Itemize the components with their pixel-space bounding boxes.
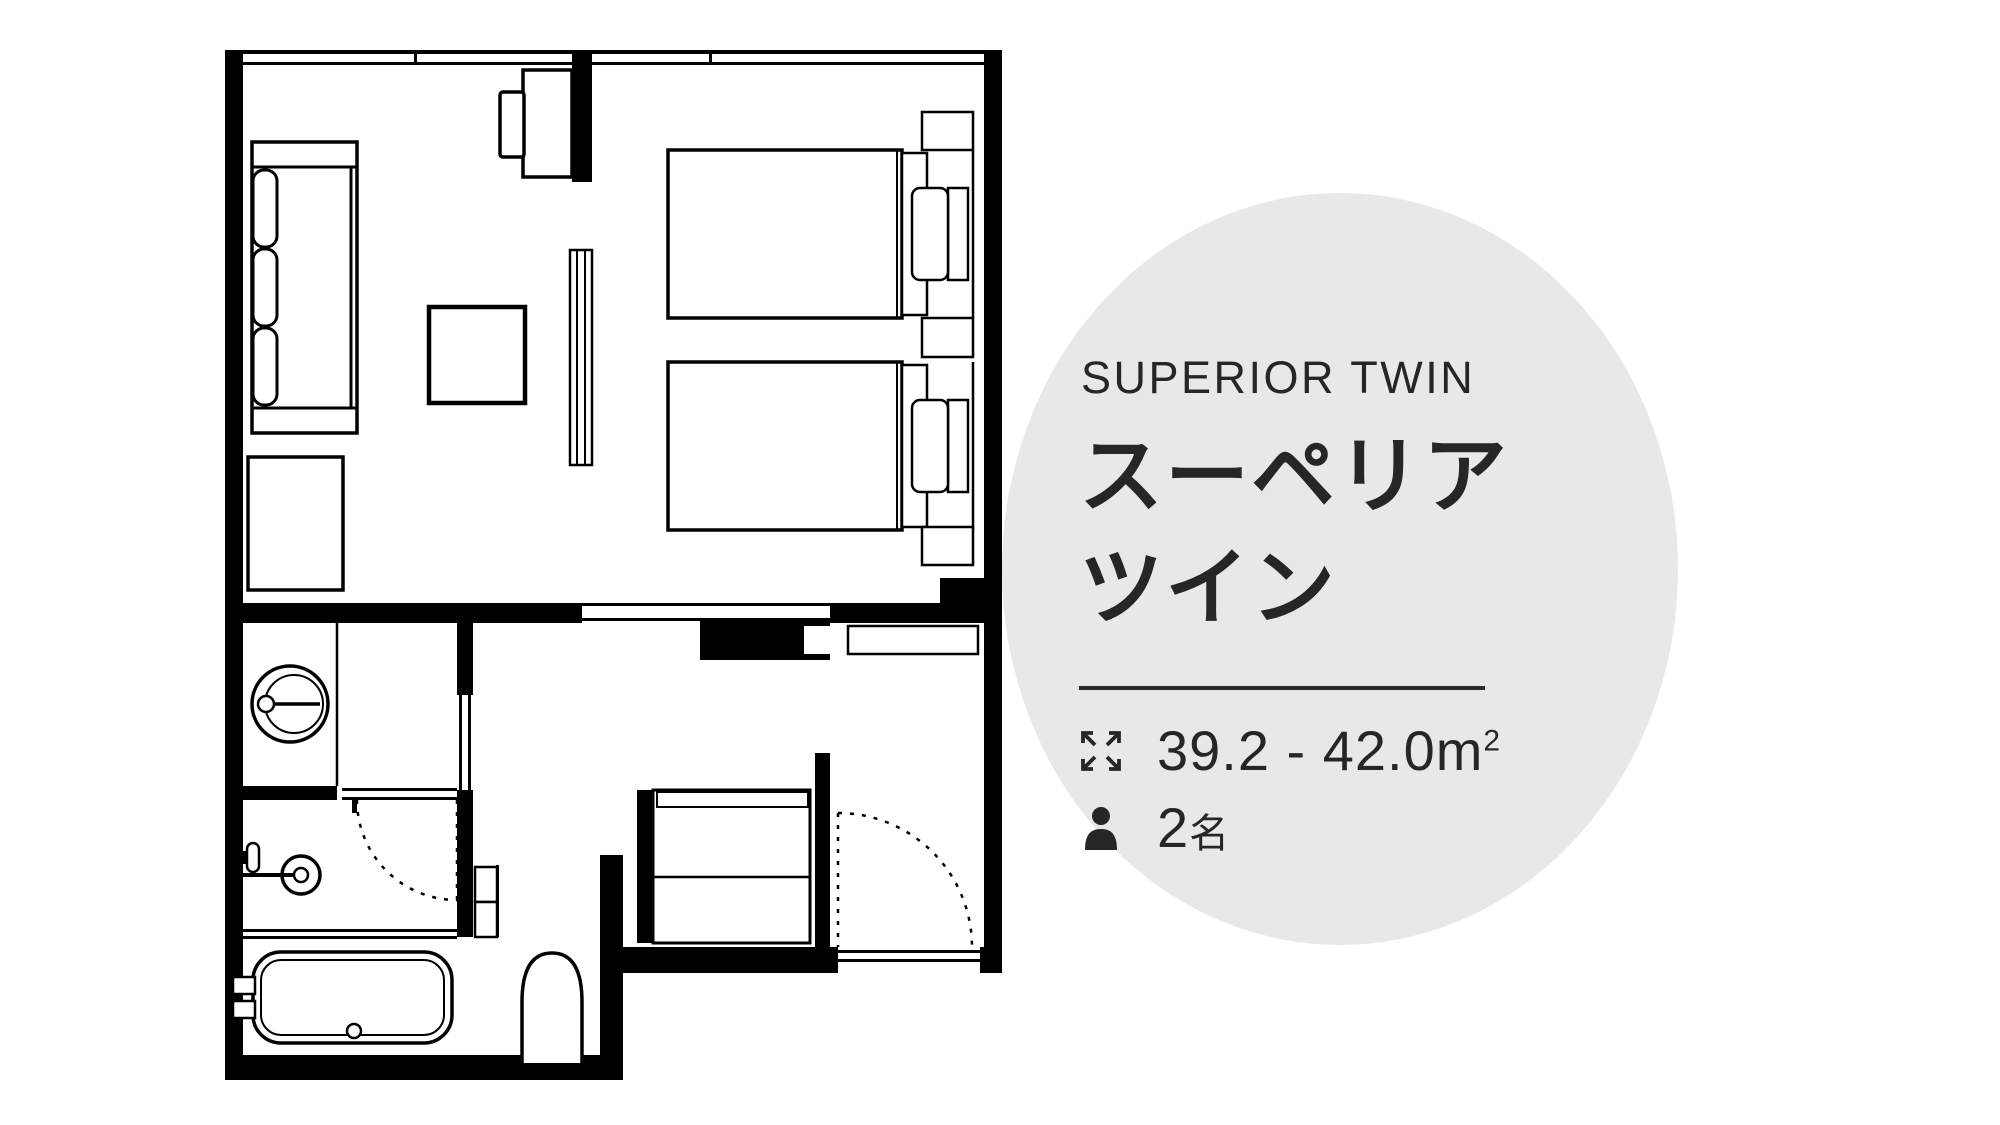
wall-bottom-right-corner [980,947,1002,973]
room-plan-page: SUPERIOR TWIN スーペリア ツイン 39.2 - 42.0m2 [0,0,2000,1125]
wall-top-outer [243,50,984,54]
area-row: 39.2 - 42.0m2 [1079,718,1501,783]
area-text: 39.2 - 42.0m2 [1157,718,1501,783]
guests-text: 2名 [1157,795,1230,860]
bathtub [233,952,452,1043]
guests-row: 2名 [1079,795,1501,860]
shower-mixer [241,843,320,894]
bedroom-door-sill-bottom [582,618,700,621]
bathroom-door-arc [357,800,457,900]
person-icon [1079,804,1123,852]
divider-line [1079,686,1485,690]
bath-door-sill-top [342,788,457,791]
wall-toilet [600,855,623,1080]
bath-divider-line-1 [243,929,457,932]
powder-opening-jamb-1 [459,695,462,790]
wall-middle-right [830,603,984,623]
expand-arrows-icon [1079,729,1123,773]
wall-closet-jamb [637,790,653,943]
toilet [522,953,582,1063]
headboard-shelves [922,112,973,565]
wall-powder-lower [457,790,473,937]
wall-bottom-middle [623,947,838,973]
window-mullion-left [414,50,417,65]
tv [500,92,524,157]
ottoman-table [429,307,525,403]
wall-powder-band [225,786,337,800]
wall-niche-notch [804,626,830,654]
media-board [570,250,592,465]
sofa [252,142,357,433]
window-inner-left [243,62,572,65]
wall-right [984,50,1002,960]
window-mullion-right [709,50,712,65]
pillow-2 [912,400,948,492]
room-type-en: SUPERIOR TWIN [1081,352,1475,404]
bath-door-sill-bottom [342,797,457,800]
entrance-sill-bottom [838,959,980,962]
pillow-1 [912,188,948,280]
twin-bed-1 [668,150,973,318]
tv-cabinet [523,70,572,177]
wall-pillar-tv [572,50,592,182]
washbasin [252,666,328,742]
room-type-ja: スーペリア ツイン [1079,420,1509,644]
room-type-ja-line2: ツイン [1079,541,1337,635]
twin-bed-2 [668,362,973,530]
closet-shelves [653,790,810,943]
bath-divider-line-2 [243,936,457,939]
wall-middle [225,603,582,623]
wall-powder-upper [457,621,473,695]
wall-left [225,50,243,1080]
niche-face-line [700,603,830,606]
bedroom-door-sill-top [582,603,700,606]
floor-plan [0,0,2000,1125]
wall-stub [940,578,984,605]
toilet-door-frame [475,867,497,937]
entrance-sill-top [838,950,980,953]
window-inner-right [592,62,984,65]
luggage-bench [248,457,343,590]
room-specs: 39.2 - 42.0m2 2名 [1079,718,1501,860]
powder-opening-jamb-2 [468,695,471,790]
wall-entrance [815,753,830,947]
room-type-ja-line1: スーペリア [1079,429,1509,523]
entrance-door-arc [838,813,972,947]
entrance-closet [848,626,978,654]
